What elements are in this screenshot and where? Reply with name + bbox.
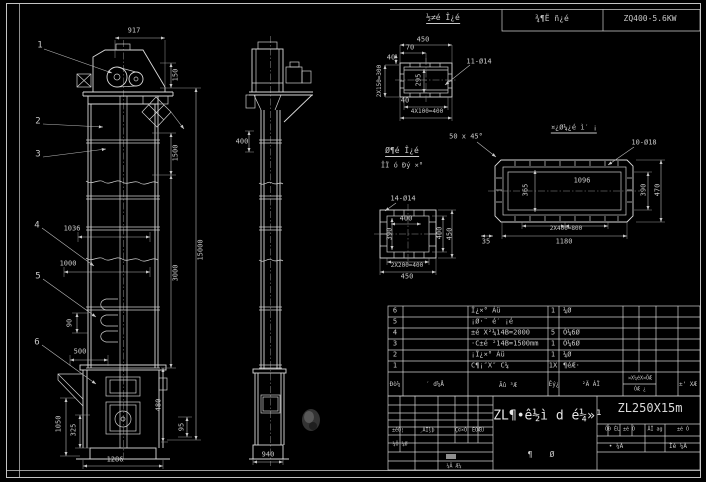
note-chamfer: 50 x 45° <box>449 134 483 141</box>
bom-header-name: Ãû ³Æ <box>499 383 517 389</box>
balloon-3: 3 <box>35 151 40 160</box>
tb-right-a: ÖÐ ÈL ±é Ó <box>605 428 635 433</box>
tb-label-sign: Ç©×Ó <box>455 429 467 434</box>
note-casing: ¤¿Ø¼¿é ì′ ¡ <box>551 125 597 134</box>
dim-365: 365 <box>523 184 530 197</box>
tb-label-design: ¼Õ ¼Ø <box>392 443 407 448</box>
bom-row2-name: ¡Î¿×° Àü <box>471 352 505 359</box>
bom-row2-mat: ¼Ø <box>563 352 571 359</box>
bom-row1-no: 1 <box>393 363 397 370</box>
bom-header-seq: Ðò¼ <box>390 382 401 388</box>
tb-label-date: ÈÕÆÚ <box>472 429 484 434</box>
bom-row6-name: Î¿×° Àü <box>471 308 501 315</box>
dim-70: 70 <box>406 45 414 52</box>
dim-295: 295 <box>416 74 423 87</box>
model-number: ZL250X15m <box>617 402 682 414</box>
tb-label-check: ¼Ä Æ¼ <box>446 465 461 470</box>
dim-1180: 1180 <box>556 239 573 246</box>
balloon-5: 5 <box>35 273 40 282</box>
dim-390-casing: 390 <box>641 184 648 197</box>
dim-150: 150 <box>173 69 180 82</box>
bom-row2-qty: 1 <box>551 352 555 359</box>
dim-1050: 1050 <box>56 416 63 433</box>
dim-470: 470 <box>655 184 662 197</box>
dim-40b: 40 <box>401 98 409 105</box>
bom-row2-no: 2 <box>393 352 397 359</box>
dim-3000: 3000 <box>173 265 180 282</box>
bom-row3-name: ·C±é ²14B=1500mm <box>471 341 538 348</box>
dim-2x200: 2X200=400 <box>391 263 424 269</box>
dim-450-right: 450 <box>447 228 454 241</box>
dim-4x100: 4X100=400 <box>411 109 444 115</box>
bom-header-qty: Êý¿ <box>549 382 560 388</box>
tb-right-c: ±é Ó <box>677 428 689 433</box>
bom-header-note-top: ¤X¼éX¤ÖÆ <box>628 377 652 382</box>
note-detail-sub: ÎÏ ó Ðý ×° <box>381 163 423 170</box>
bom-row6-mat: ¼Ø <box>563 308 571 315</box>
balloon-4: 4 <box>34 222 39 231</box>
dim-1036: 1036 <box>64 226 81 233</box>
dim-500: 500 <box>74 349 87 356</box>
tb-right-e: Ìé ¼Ä <box>669 444 687 450</box>
balloon-1: 1 <box>37 42 42 51</box>
dim-1500: 1500 <box>173 145 180 162</box>
dim-390-inner: 390 <box>387 228 394 241</box>
dim-40a: 40 <box>387 55 395 62</box>
dim-2x400: 2X400=800 <box>550 226 583 232</box>
bom-row1-name: C¶¡″X″ C¼ <box>471 363 509 370</box>
drawing-title: ZL¶•ê½ì d é¼»¹ <box>493 410 603 423</box>
dim-400-inner: 400 <box>400 216 413 223</box>
dim-917: 917 <box>128 28 141 35</box>
callout-11-d14: 11-Ø14 <box>466 59 491 66</box>
bom-header-remark: ±' XÆ <box>679 382 697 388</box>
tb-right-d: • ¼Ä <box>609 444 623 450</box>
dim-1286: 1286 <box>107 457 124 464</box>
strip-drive-label: ¾¶Ë ñ¿é <box>535 15 569 23</box>
bom-row3-mat: Ò¼6Ø <box>563 341 580 348</box>
balloon-2: 2 <box>35 118 40 127</box>
bom-row1-mat: ¶éÆ· <box>563 363 580 370</box>
bom-row3-no: 3 <box>393 341 397 348</box>
bom-header-code: ′ d¼Å <box>426 382 444 388</box>
bom-header-mat: ²Ä ÁÏ <box>582 382 600 388</box>
tb-label-mark: ±êÖ¦ <box>392 429 404 434</box>
bom-header-note-bot: ÓÆ ¿ <box>634 388 646 393</box>
bom-row4-no: 4 <box>393 330 397 337</box>
dim-400-side: 400 <box>236 139 249 146</box>
dim-450-top: 450 <box>417 37 430 44</box>
dim-940: 940 <box>262 452 275 459</box>
note-detail-title: Ø¶é Î¿é <box>385 147 419 157</box>
dim-325: 325 <box>71 424 78 437</box>
dim-15000: 15000 <box>198 239 205 260</box>
bom-row6-no: 6 <box>393 308 397 315</box>
sheet-count-a: ¶ <box>528 451 533 459</box>
callout-10-d18: 10-Ø18 <box>631 140 656 147</box>
dim-35: 35 <box>482 239 490 246</box>
balloon-6: 6 <box>34 339 39 348</box>
bom-row5-name: ¡Ø·¨ é′ ¡é <box>471 319 513 326</box>
dim-1000: 1000 <box>60 261 77 268</box>
dim-480: 480 <box>156 399 163 412</box>
bom-row3-qty: 1 <box>551 341 555 348</box>
tb-right-b: ÅÎ ag <box>647 428 662 433</box>
callout-14-d14: 14-Ø14 <box>390 196 415 203</box>
dim-400-right: 400 <box>437 227 444 240</box>
bom-row4-qty: 5 <box>551 330 555 337</box>
dim-450-bottom: 450 <box>401 274 414 281</box>
strip-drive-model: ZQ400-5.6KW <box>624 15 677 23</box>
strip-note: ½≠é Î¿é <box>426 14 460 24</box>
bom-row1-qty: 1X <box>549 363 557 370</box>
dim-1096: 1096 <box>574 178 591 185</box>
tb-label-docs: ¸ÄÎļþ <box>419 429 434 434</box>
sheet-count-b: Ø <box>550 451 555 459</box>
annotation-layer: ½≠é Î¿é¾¶Ë ñ¿éZQ400-5.6KW123456917150150… <box>0 0 706 482</box>
bom-row4-name: ±é X²¼14B=2000 <box>471 330 530 337</box>
cad-sheet: ½≠é Î¿é¾¶Ë ñ¿éZQ400-5.6KW123456917150150… <box>0 0 706 482</box>
bom-row4-mat: Ò¼6Ø <box>563 330 580 337</box>
dim-2x150: 2X150=300 <box>377 65 383 98</box>
dim-90: 90 <box>67 319 74 327</box>
bom-row5-no: 5 <box>393 319 397 326</box>
bom-row6-qty: 1 <box>551 308 555 315</box>
dim-95: 95 <box>179 423 186 431</box>
